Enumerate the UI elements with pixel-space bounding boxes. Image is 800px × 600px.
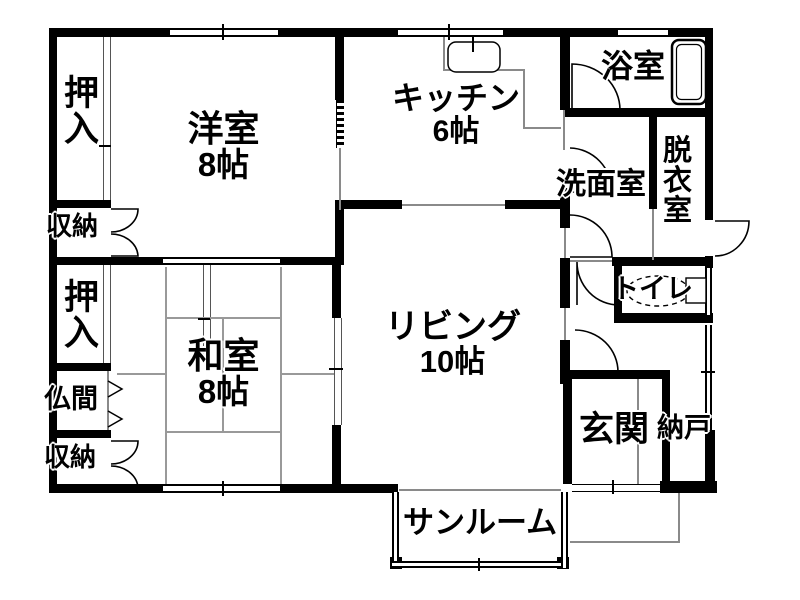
room-label-sunroom: サンルーム — [403, 507, 557, 539]
room-label-yoshitsu: 洋室 — [151, 110, 296, 147]
room-label-genkan: 玄関 — [579, 412, 649, 448]
room-label-washitsu: 和室 — [151, 337, 296, 374]
room-label-yokushitsu: 浴室 — [601, 50, 665, 83]
room-label-living: リビング — [385, 310, 520, 345]
double-door-icon[interactable] — [111, 441, 138, 488]
room-label-senmenshitsu: 洗面室 — [556, 169, 646, 200]
room-label-shuno-bottom: 収納 — [44, 444, 96, 471]
room-size-yoshitsu: 8帖 — [151, 148, 296, 182]
door-arc-icon[interactable] — [575, 330, 618, 372]
room-size-kitchen: 6帖 — [388, 116, 524, 147]
folding-door-icon[interactable] — [108, 381, 122, 427]
room-label-shuno-top: 収納 — [46, 213, 98, 240]
door-arc-icon[interactable] — [570, 215, 612, 257]
kitchen-sink-icon — [448, 37, 500, 72]
bathtub-icon — [672, 40, 706, 104]
door-arc-icon[interactable] — [715, 221, 749, 256]
room-label-datsuishitsu: 脱衣室 — [663, 136, 694, 226]
double-door-icon[interactable] — [111, 209, 138, 256]
room-size-washitsu: 8帖 — [151, 375, 296, 409]
room-size-living: 10帖 — [385, 346, 520, 378]
room-label-toilet: トイレ — [612, 275, 693, 303]
floor-plan: 押入 洋室 8帖 キッチン 6帖 浴室 収納 洗面室 脱衣室 押入 和室 8帖 … — [0, 0, 800, 600]
room-label-oshiire-bottom: 押入 — [64, 280, 101, 353]
room-label-nando: 納戸 — [657, 414, 711, 442]
room-label-oshiire-top: 押入 — [64, 76, 101, 149]
room-label-kitchen: キッチン — [388, 82, 524, 115]
room-label-butsuma: 仏間 — [44, 385, 98, 413]
